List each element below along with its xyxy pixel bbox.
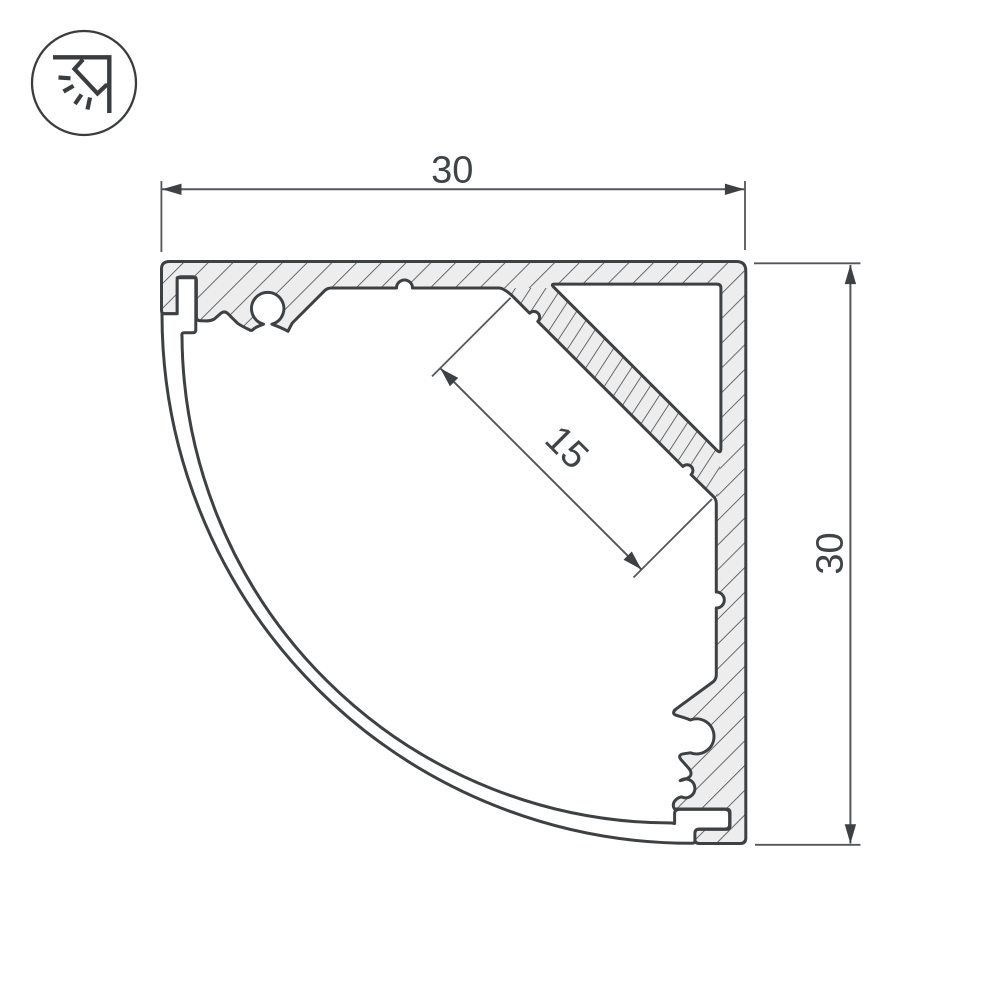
svg-text:15: 15 xyxy=(537,418,597,478)
svg-text:30: 30 xyxy=(431,150,473,192)
svg-text:30: 30 xyxy=(810,532,852,574)
